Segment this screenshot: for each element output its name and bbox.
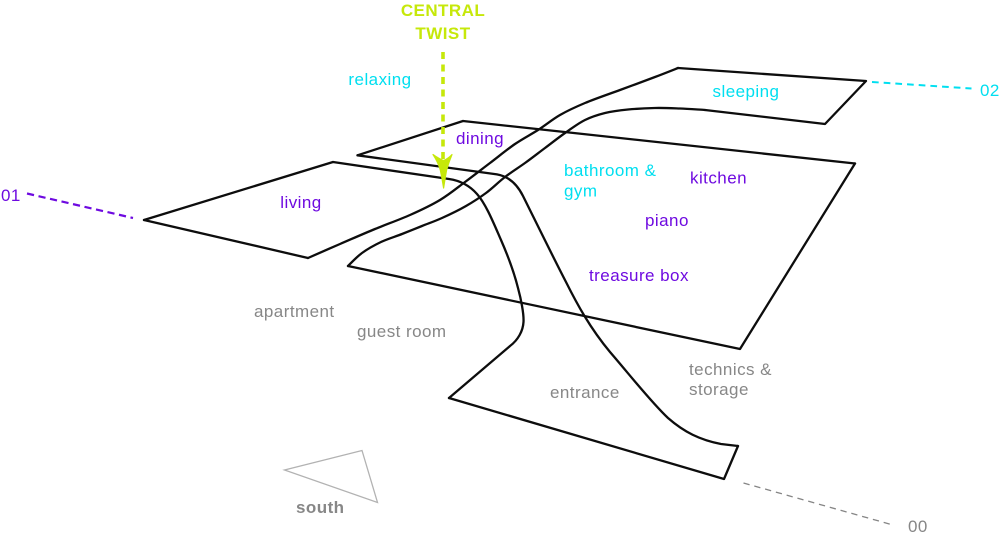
svg-text:treasure box: treasure box: [589, 266, 689, 285]
svg-text:technics &: technics &: [689, 360, 772, 379]
svg-text:kitchen: kitchen: [690, 169, 747, 188]
svg-text:01: 01: [1, 186, 21, 205]
svg-text:gym: gym: [564, 182, 597, 201]
svg-text:storage: storage: [689, 380, 749, 399]
svg-text:02: 02: [980, 81, 1000, 100]
svg-text:CENTRAL: CENTRAL: [401, 1, 485, 20]
svg-text:sleeping: sleeping: [713, 82, 780, 101]
svg-text:living: living: [280, 193, 321, 212]
svg-text:bathroom &: bathroom &: [564, 161, 657, 180]
svg-text:south: south: [296, 498, 345, 517]
svg-text:apartment: apartment: [254, 302, 335, 321]
svg-text:relaxing: relaxing: [348, 70, 411, 89]
svg-text:dining: dining: [456, 129, 504, 148]
svg-text:guest room: guest room: [357, 322, 447, 341]
svg-text:TWIST: TWIST: [415, 24, 470, 43]
svg-text:entrance: entrance: [550, 383, 620, 402]
svg-text:00: 00: [908, 517, 928, 536]
svg-text:piano: piano: [645, 211, 689, 230]
